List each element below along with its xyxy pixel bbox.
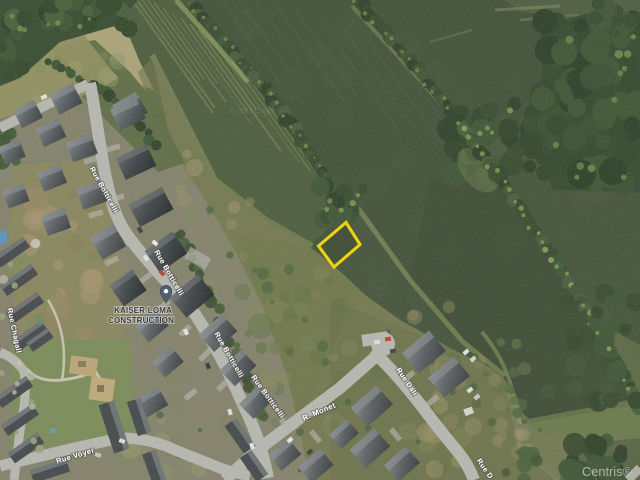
svg-text:Centris®: Centris®	[582, 464, 633, 479]
svg-text:KAISER-LOMA: KAISER-LOMA	[114, 306, 172, 315]
svg-text:© 2013 Google: © 2013 Google	[230, 107, 277, 115]
svg-text:CONSTRUCTION: CONSTRUCTION	[108, 316, 174, 325]
